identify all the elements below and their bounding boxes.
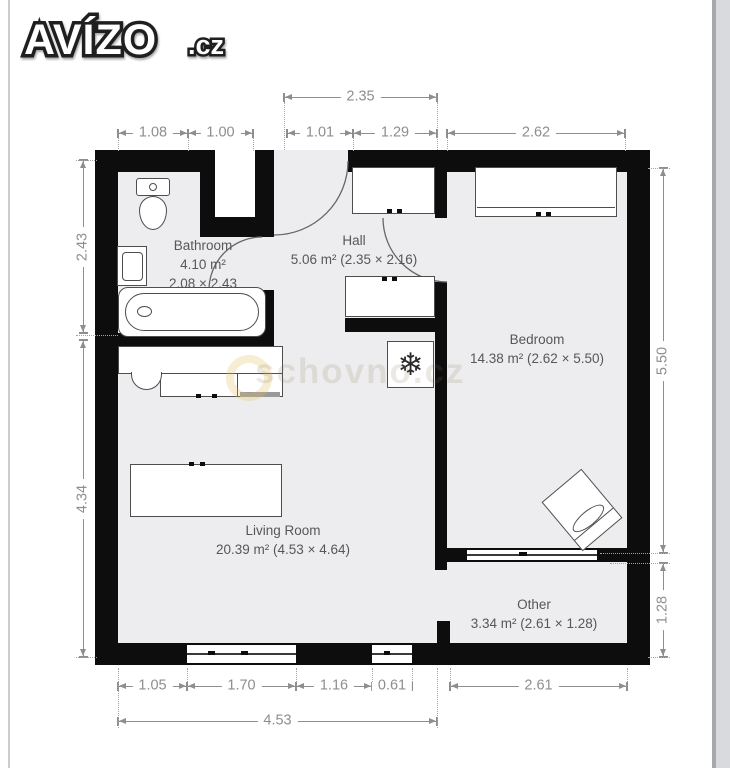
extension-line xyxy=(118,138,119,151)
extension-line xyxy=(253,138,254,151)
extension-line xyxy=(76,657,97,658)
dim-top-5: 2.62 xyxy=(447,133,625,134)
room-info: 3.34 m² (2.61 × 1.28) xyxy=(424,614,644,633)
dim-bottom-total: 4.53 xyxy=(118,721,437,722)
dim-right-1: 5.50 xyxy=(663,168,664,553)
bathtub-drain xyxy=(137,306,152,317)
dim-bottom-4: 0.61 xyxy=(372,686,412,687)
extension-line xyxy=(648,657,670,658)
extension-line xyxy=(412,668,413,682)
dim-bottom-3: 1.16 xyxy=(296,686,372,687)
cabinet-tick xyxy=(196,394,201,398)
extension-line xyxy=(296,668,297,682)
room-name: Hall xyxy=(244,231,464,250)
extension-line xyxy=(353,138,354,151)
wardrobe-tick xyxy=(392,277,397,281)
extension-line xyxy=(447,138,448,151)
room-info: 5.06 m² (2.35 × 2.16) xyxy=(244,250,464,269)
room-size: 2.08 × 2.43 xyxy=(93,274,313,293)
wardrobe-tick xyxy=(546,212,551,216)
toilet-button-icon xyxy=(149,183,157,191)
room-label-bedroom: Bedroom 14.38 m² (2.62 × 5.50) xyxy=(427,330,647,368)
dim-bottom-5: 2.61 xyxy=(450,686,627,687)
dim-right-2: 1.28 xyxy=(663,563,664,657)
room-name: Living Room xyxy=(173,521,393,540)
extension-line xyxy=(450,668,451,682)
extension-line xyxy=(284,102,285,150)
dim-top-2: 1.00 xyxy=(188,133,253,134)
dim-top-3: 1.01 xyxy=(287,133,353,134)
bedroom-wardrobe xyxy=(475,167,617,217)
room-label-other: Other 3.34 m² (2.61 × 1.28) xyxy=(424,595,644,633)
dim-left-1: 2.43 xyxy=(83,160,84,333)
extension-line xyxy=(610,563,670,564)
room-label-living: Living Room 20.39 m² (4.53 × 4.64) xyxy=(173,521,393,559)
extension-line xyxy=(187,668,188,682)
extension-line xyxy=(76,335,118,336)
wardrobe-tick xyxy=(382,277,387,281)
entrance-door-arc xyxy=(274,161,348,235)
cabinet-tick xyxy=(212,394,217,398)
wardrobe-tick xyxy=(387,209,392,213)
room-name: Bedroom xyxy=(427,330,647,349)
extension-line xyxy=(437,102,438,150)
extension-line xyxy=(648,168,670,169)
hall-wardrobe-top xyxy=(352,167,435,214)
bedroom-wardrobe-line xyxy=(477,207,615,208)
hall-wardrobe-bottom xyxy=(345,276,435,317)
extension-line xyxy=(372,668,373,682)
room-info: 20.39 m² (4.53 × 4.64) xyxy=(173,540,393,559)
dim-hall-width: 2.35 xyxy=(284,97,437,98)
room-name: Other xyxy=(424,595,644,614)
living-table xyxy=(130,464,282,517)
extension-line xyxy=(118,668,119,728)
wardrobe-tick xyxy=(536,212,541,216)
dim-top-1: 1.08 xyxy=(118,133,188,134)
extension-line xyxy=(625,138,626,151)
extension-line xyxy=(627,668,628,682)
dim-top-4: 1.29 xyxy=(353,133,437,134)
dim-left-2: 4.34 xyxy=(83,340,84,657)
table-tick xyxy=(189,462,194,466)
extension-line xyxy=(76,160,97,161)
dim-bottom-2: 1.70 xyxy=(187,686,296,687)
room-info: 14.38 m² (2.62 × 5.50) xyxy=(427,349,647,368)
wardrobe-tick xyxy=(397,209,402,213)
floor-plan-page: AVÍZO .cz xyxy=(0,0,730,768)
dim-bottom-1: 1.05 xyxy=(118,686,187,687)
extension-line xyxy=(437,668,438,728)
extension-line xyxy=(188,138,189,151)
extension-line xyxy=(600,553,670,554)
table-tick xyxy=(200,462,205,466)
room-label-hall: Hall 5.06 m² (2.35 × 2.16) xyxy=(244,231,464,269)
